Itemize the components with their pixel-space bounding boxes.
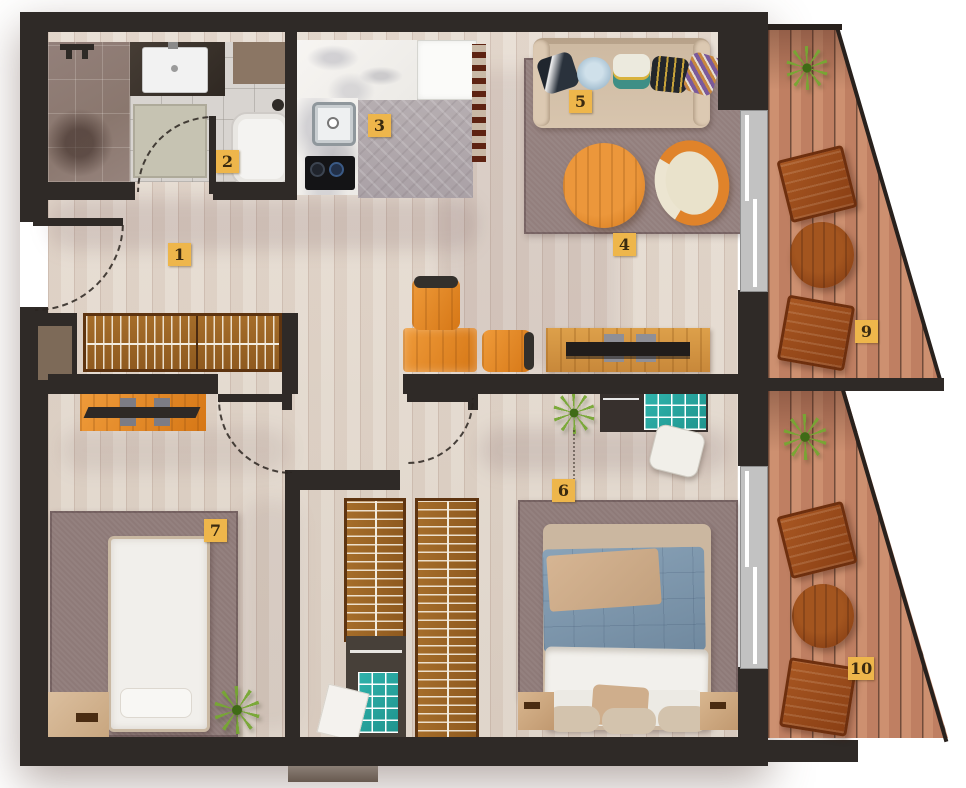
coffee-table [563,143,645,228]
wall-left-upper [20,12,48,222]
wall-top [20,12,768,32]
patio-chair [777,295,855,372]
wall-right-bottom [738,667,768,766]
shower-head-icon [66,50,72,59]
wardrobe-tall [415,498,479,743]
radiator-screen [472,44,486,162]
kitchen-floor [358,98,473,198]
wall-dressing-top [285,470,400,490]
kitchen-counter-top [297,40,417,100]
wall-corner-ne [718,12,768,110]
balcony-upper-rail-top [768,24,842,30]
wall-mid-left [48,374,218,394]
window-pane [745,115,749,201]
dining-table [403,328,477,372]
room-label-bedroom-main: 6 [552,479,575,502]
wall-right-mid [738,290,768,466]
nightstand-knob [76,713,98,722]
sink-faucet-icon [168,42,178,49]
desk-mat [644,394,706,430]
label6-leader [573,430,575,480]
wall-bottom [20,737,768,766]
entry-shaft-mat [38,326,72,380]
kitchen-sink-drain [327,117,339,129]
window-pane [745,471,749,567]
cooktop-burner [329,162,344,177]
balcony-plant [786,46,828,90]
cooktop-burner [310,162,325,177]
sofa-pillow [613,54,650,89]
living-room-window [740,110,768,292]
dresser-top-ledge [84,407,201,418]
headboard-cushion [602,708,656,734]
hall-wardrobe-divider [196,316,198,369]
sofa-pillow [577,57,611,90]
balcony-lower-bottom-wall [768,740,858,762]
patio-chair [779,657,857,737]
potted-plant [553,392,595,434]
potted-plant [214,686,260,734]
wardrobe-small [344,498,406,642]
room-label-balcony-lower: 10 [848,657,874,680]
wall-bath-south-left [48,182,135,200]
nightstand-knob [524,702,540,709]
nightstand-knob [710,702,726,709]
tub-faucet-icon [272,99,284,111]
bedroom-window [740,466,768,669]
dining-chair-back [524,332,534,370]
room-label-entry-hall: 1 [168,243,191,266]
patio-table [792,584,854,648]
floor-plan-canvas: 1 2 3 4 5 6 7 9 10 [0,0,966,788]
wall-mid-right [403,374,768,394]
room-label-balcony-upper: 9 [855,320,878,343]
room-label-bathroom: 2 [216,150,239,173]
fridge [417,40,477,100]
shower-area [48,42,130,182]
balcony-plant [783,414,827,460]
patio-table [790,222,854,288]
entry-landing [288,766,378,782]
wall-dressing-left [285,470,300,737]
bedroom6-nightstand [518,692,554,730]
wall-bath-kitchen-divider [285,32,297,200]
bath-mat [233,42,285,84]
hall-wardrobe [83,313,282,372]
shower-head-icon [82,50,88,59]
niche-shelf-line [350,650,402,653]
window-pane [753,567,757,664]
tv [566,342,690,356]
bedroom6-nightstand [700,692,738,730]
room-label-kitchen: 3 [368,114,391,137]
balcony-divider [768,378,944,391]
wall-bath-south-right [213,182,297,200]
headboard-cushion [548,706,600,732]
room-label-sofa-zone: 5 [569,90,592,113]
window-pane [753,199,757,287]
dining-chair-back [414,276,458,288]
room-label-living-room: 4 [613,233,636,256]
wall-mid-stub [282,313,298,394]
room-label-bedroom-small: 7 [204,519,227,542]
desk-shelf-line [603,398,639,400]
bed-throw-blanket [546,548,662,612]
sofa-pillow [649,55,689,94]
single-bed-pillow [120,688,192,718]
bathtub [231,112,291,186]
sink-drain [171,65,178,72]
